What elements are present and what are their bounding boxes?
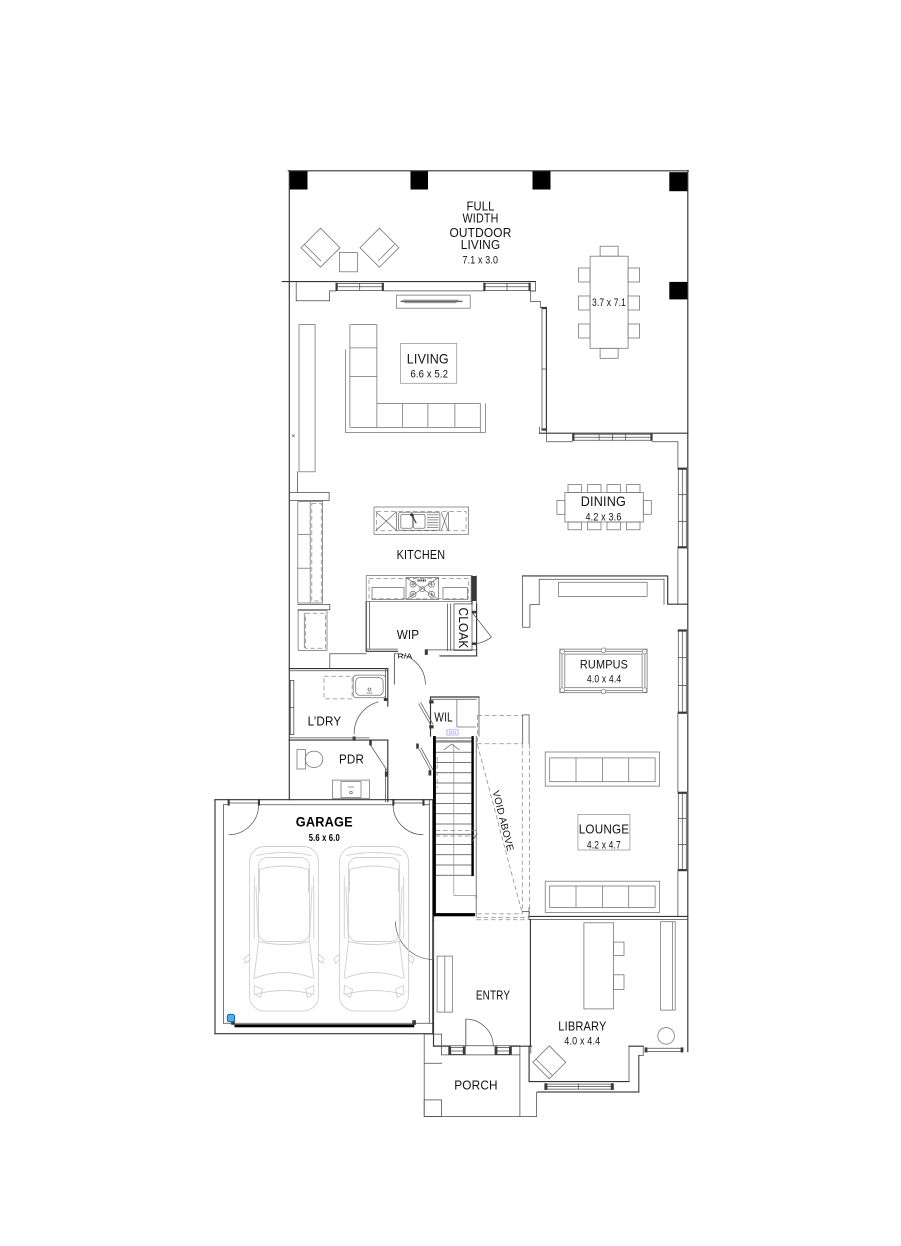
svg-text:4.0 x 4.4: 4.0 x 4.4	[587, 673, 622, 685]
svg-text:3.7 x 7.1: 3.7 x 7.1	[592, 297, 626, 309]
svg-text:LIVING: LIVING	[461, 237, 501, 252]
svg-text:DN: DN	[449, 730, 456, 735]
svg-text:CLOAK: CLOAK	[456, 608, 471, 649]
svg-text:5.6 x 6.0: 5.6 x 6.0	[309, 833, 340, 844]
svg-text:4.0 x 4.4: 4.0 x 4.4	[564, 1036, 600, 1048]
svg-text:RUMPUS: RUMPUS	[580, 657, 628, 671]
svg-text:LOUNGE: LOUNGE	[579, 822, 630, 837]
svg-text:WIL: WIL	[434, 709, 453, 724]
svg-text:DINING: DINING	[581, 494, 626, 509]
svg-text:GARAGE: GARAGE	[296, 814, 353, 829]
svg-text:VOID ABOVE: VOID ABOVE	[490, 790, 516, 853]
svg-text:R/A: R/A	[398, 652, 413, 661]
svg-text:s: s	[475, 895, 478, 901]
svg-text:PORCH: PORCH	[454, 1078, 498, 1093]
svg-text:L’DRY: L’DRY	[308, 714, 342, 729]
svg-text:×: ×	[292, 434, 296, 440]
svg-text:ENTRY: ENTRY	[476, 988, 510, 1003]
svg-text:LIBRARY: LIBRARY	[558, 1019, 606, 1034]
svg-text:KITCHEN: KITCHEN	[397, 547, 446, 562]
svg-text:WIP: WIP	[397, 627, 420, 642]
svg-text:4.2 x 3.6: 4.2 x 3.6	[586, 512, 622, 524]
svg-text:LIVING: LIVING	[407, 351, 449, 366]
svg-text:WIDTH: WIDTH	[463, 211, 499, 226]
svg-text:6.6 x 5.2: 6.6 x 5.2	[410, 369, 448, 381]
svg-text:PDR: PDR	[339, 752, 364, 767]
svg-text:7.1 x 3.0: 7.1 x 3.0	[463, 255, 499, 267]
svg-text:4.2 x 4.7: 4.2 x 4.7	[587, 839, 621, 851]
